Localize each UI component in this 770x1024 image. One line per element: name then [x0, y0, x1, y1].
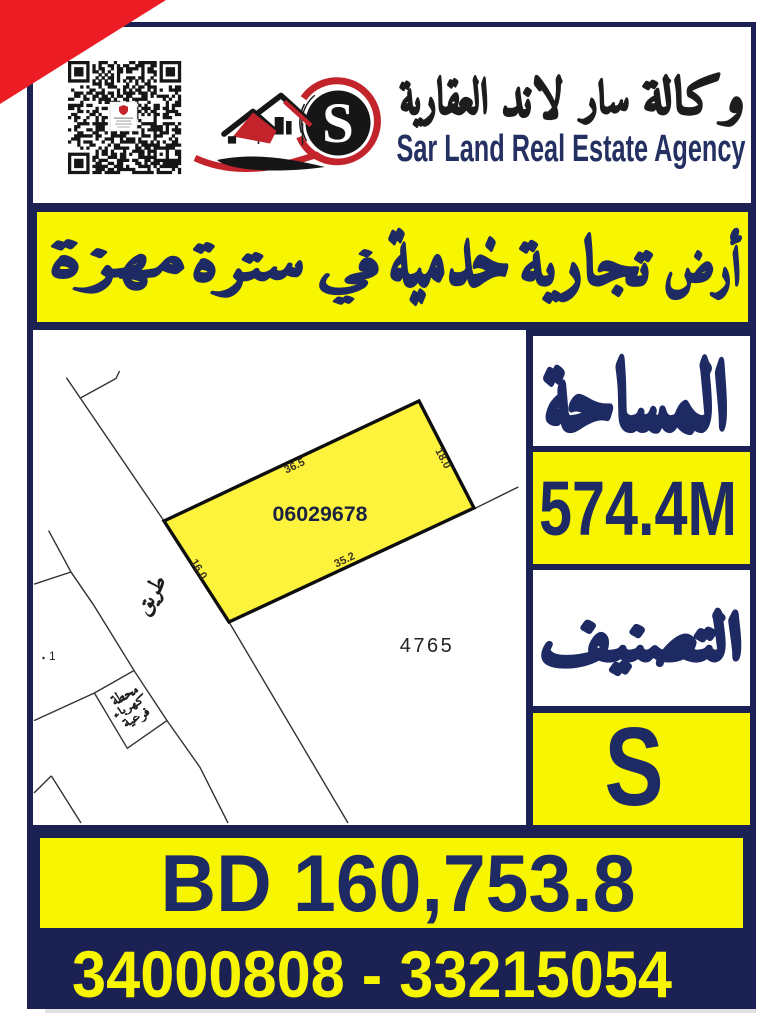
- svg-text:34000808 - 33215054: 34000808 - 33215054: [72, 937, 672, 1011]
- svg-text:S: S: [322, 92, 354, 155]
- svg-text:4765: 4765: [400, 635, 455, 657]
- svg-text:1: 1: [49, 649, 56, 663]
- svg-text:06029678: 06029678: [273, 503, 368, 526]
- svg-text:BD 160,753.8: BD 160,753.8: [161, 839, 636, 929]
- svg-text:S: S: [604, 706, 663, 830]
- svg-text:574.4M: 574.4M: [539, 466, 737, 552]
- svg-text:Sar Land Real Estate Agency: Sar Land Real Estate Agency: [397, 128, 746, 170]
